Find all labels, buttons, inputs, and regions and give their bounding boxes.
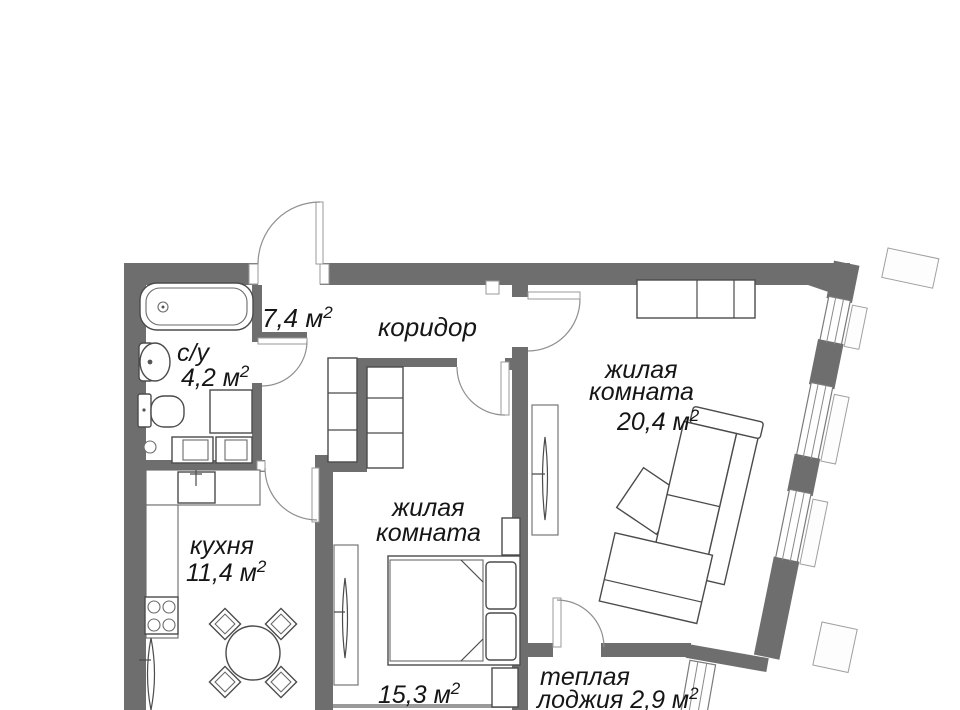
middle-room-name-label-1: жилая <box>391 494 464 522</box>
kitchen-fixtures <box>139 470 297 710</box>
exterior-ledge <box>882 248 939 288</box>
bed <box>388 556 520 665</box>
wall-segment <box>754 557 799 660</box>
wall-segment <box>124 263 146 710</box>
wall-segment <box>528 643 553 657</box>
wall-segment <box>512 285 528 297</box>
kitchen-sink <box>178 470 215 503</box>
floor-plan: 7,4 м2 коридор с/у 4,2 м2 кухня 11,4 м2 … <box>0 0 960 710</box>
right-room-area-label: 20,4 м2 <box>616 406 700 436</box>
bathroom-door <box>258 338 307 386</box>
wall-segment <box>809 339 844 389</box>
stove <box>145 597 178 634</box>
loggia-door <box>553 598 604 647</box>
bathroom-area-label: 4,2 м2 <box>181 362 250 392</box>
door-swing-arc <box>557 600 604 647</box>
wash-basin <box>139 343 170 381</box>
door-swing-arc <box>262 341 307 386</box>
door-leaf <box>528 292 580 299</box>
kitchen-area-label: 11,4 м2 <box>186 557 267 587</box>
door-leaf <box>553 598 561 647</box>
dining-table <box>209 608 296 697</box>
door-leaf <box>501 362 509 415</box>
exterior-ledge <box>813 622 857 673</box>
toilet <box>138 394 184 427</box>
wall-segment <box>601 643 691 657</box>
bathtub <box>140 283 253 330</box>
pillow <box>486 613 516 660</box>
wardrobe <box>637 280 755 318</box>
entrance-door <box>258 202 323 264</box>
corridor-area-label: 7,4 м2 <box>262 303 333 333</box>
middle-room-name-label-2: комната <box>376 519 481 547</box>
tv-panel <box>334 545 358 685</box>
corridor-name-label: коридор <box>378 312 477 342</box>
loggia-name-label-2: лоджия 2,9 м2 <box>535 684 699 710</box>
wall-segment <box>320 263 840 285</box>
kitchen-name-label: кухня <box>190 532 254 560</box>
nightstand <box>492 668 518 707</box>
floor-drain <box>144 441 156 453</box>
nightstand <box>502 518 520 555</box>
floor-plan-drawing: 7,4 м2 коридор с/у 4,2 м2 кухня 11,4 м2 … <box>0 0 960 710</box>
tv-panel <box>532 405 558 535</box>
door-swing-arc <box>258 202 320 264</box>
middle-room-area-label: 15,3 м2 <box>378 679 461 709</box>
door-leaf <box>316 202 323 264</box>
bathroom-cabinet <box>210 390 252 433</box>
right-room-name-label-2: комната <box>589 378 694 406</box>
bathroom-name-label: с/у <box>177 339 210 367</box>
door-jamb <box>320 264 329 284</box>
wall-segment <box>357 358 367 467</box>
door-jamb <box>249 264 258 284</box>
door-leaf <box>258 338 307 344</box>
right-room-door <box>528 292 580 351</box>
right-room-furniture <box>532 280 764 628</box>
diagonal-facade <box>754 261 875 663</box>
door-swing-arc <box>528 299 580 351</box>
middle-room-door <box>457 362 509 415</box>
wall-segment <box>357 358 457 367</box>
pillow <box>486 562 516 609</box>
door-swing-arc <box>265 468 317 520</box>
door-leaf <box>312 468 319 522</box>
kitchen-door <box>265 468 319 522</box>
washing-machines <box>172 437 252 463</box>
wall-tick <box>486 281 499 294</box>
door-swing-arc <box>457 367 505 415</box>
wall-segment <box>252 383 262 460</box>
